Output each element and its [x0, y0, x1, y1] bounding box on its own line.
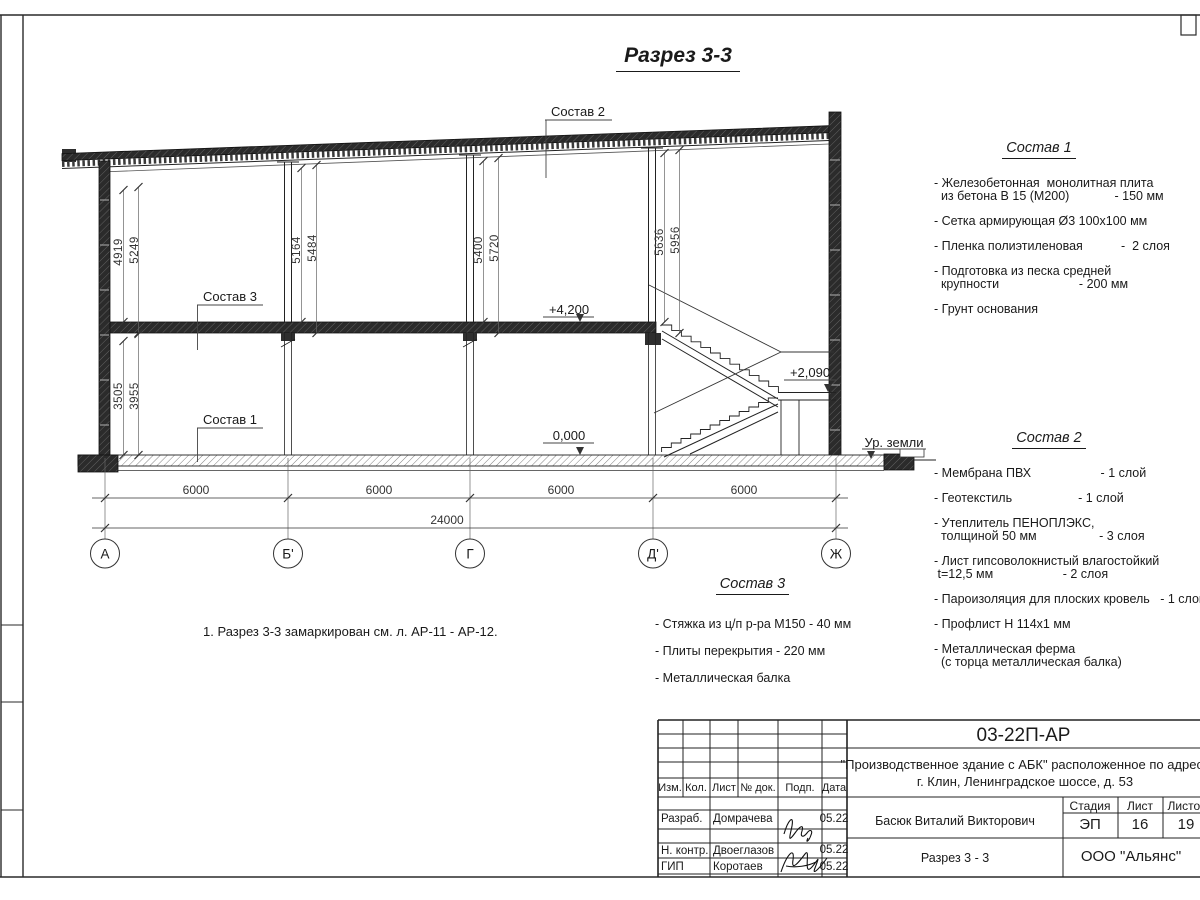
ground-floor-slab — [78, 449, 936, 472]
titleblock-col-list: Лист — [712, 782, 736, 794]
titleblock-col-data: Дата — [822, 782, 846, 794]
axis-label-zh: Ж — [830, 547, 842, 562]
callout-sostav1: Состав 1 — [197, 412, 263, 427]
dim-5956: 5956 — [670, 226, 682, 254]
drawing-title: Разрез 3-3 — [616, 44, 740, 72]
titleblock-doc-title: Разрез 3 - 3 — [921, 851, 989, 865]
titleblock-col-podp: Подп. — [785, 782, 814, 794]
titleblock-col-kol: Кол. — [685, 782, 707, 794]
callout-sostav3: Состав 3 — [197, 289, 263, 304]
dim-5164: 5164 — [291, 236, 303, 264]
titleblock-name-razrab: Домрачева — [713, 813, 773, 825]
elevation-ground: 0,000 — [543, 428, 595, 443]
titleblock-code: 03-22П-АР — [847, 725, 1200, 747]
signature-domracheva — [784, 820, 812, 842]
dim-4919: 4919 — [113, 238, 125, 266]
second-floor-slab — [110, 322, 661, 345]
dim-5636: 5636 — [654, 228, 666, 256]
titleblock-sheets-label: Листов — [1168, 799, 1200, 813]
titleblock-date-nkontr: 05.22 — [820, 844, 849, 856]
dim-total: 24000 — [430, 513, 463, 527]
titleblock-stage-value: ЭП — [1079, 816, 1101, 833]
sostav1-line: крупности - 200 мм — [934, 278, 1144, 291]
titleblock-object-line1: "Производственное здание с АБК" располож… — [841, 757, 1200, 772]
sostav1-block: Состав 1 - Железобетонная монолитная пли… — [934, 140, 1144, 316]
sostav2-line: - Мембрана ПВХ - 1 слой — [934, 467, 1164, 480]
sostav2-block: Состав 2 - Мембрана ПВХ - 1 слой - Геоте… — [934, 430, 1164, 669]
dim-span-1: 6000 — [183, 483, 210, 497]
sostav3-line: - Стяжка из ц/п р-ра М150 - 40 мм — [655, 618, 850, 631]
axis-label-a: А — [100, 547, 109, 562]
sostav3-heading: Состав 3 — [655, 576, 850, 592]
axis-label-b: Б' — [282, 547, 293, 562]
titleblock-role-nkontr: Н. контр. — [661, 845, 708, 857]
callout-sostav2: Состав 2 — [545, 104, 611, 119]
dim-5249: 5249 — [129, 236, 141, 264]
titleblock-col-doc: № док. — [740, 782, 775, 794]
elevation-landing: +2,090 — [783, 365, 837, 380]
sostav3-line: - Металлическая балка — [655, 672, 850, 685]
titleblock-col-izm: Изм. — [658, 782, 682, 794]
sostav1-line: - Пленка полиэтиленовая - 2 слоя — [934, 240, 1144, 253]
elevation-second-floor: +4,200 — [543, 302, 595, 317]
sostav1-heading: Состав 1 — [934, 140, 1144, 156]
drawing-note: 1. Разрез 3-3 замаркирован см. л. АР-11 … — [203, 624, 498, 639]
sostav1-line: - Сетка армирующая Ø3 100х100 мм — [934, 215, 1144, 228]
axis-label-g: Г — [466, 547, 473, 562]
sostav2-heading: Состав 2 — [934, 430, 1164, 446]
titleblock-sheet-value: 16 — [1132, 816, 1149, 833]
dim-5484: 5484 — [307, 234, 319, 262]
leader-lines — [197, 120, 926, 462]
titleblock-date-gip: 05.22 — [820, 861, 849, 873]
titleblock-name-nkontr: Двоеглазов — [713, 845, 774, 857]
titleblock-date-razrab: 05.22 — [820, 813, 849, 825]
sostav1-line: - Грунт основания — [934, 303, 1144, 316]
dim-3955: 3955 — [129, 382, 141, 410]
titleblock-engineer: Басюк Виталий Викторович — [875, 814, 1035, 828]
sostav2-line: - Геотекстиль - 1 слой — [934, 492, 1164, 505]
titleblock-object-line2: г. Клин, Ленинградское шоссе, д. 53 — [917, 774, 1133, 789]
sostav2-line: - Пароизоляция для плоских кровель - 1 с… — [934, 593, 1164, 606]
roof-section — [62, 126, 829, 172]
drawing-sheet: Разрез 3-3 Состав 2 Состав 3 Состав 1 +4… — [0, 0, 1200, 900]
sostav3-line: - Плиты перекрытия - 220 мм — [655, 645, 850, 658]
titleblock-role-gip: ГИП — [661, 861, 684, 873]
titleblock-company: ООО "Альянс" — [1081, 848, 1181, 865]
sostav2-line: t=12,5 мм - 2 слоя — [934, 568, 1164, 581]
dim-span-2: 6000 — [366, 483, 393, 497]
titleblock-stage-label: Стадия — [1070, 799, 1111, 813]
sostav2-line: толщиной 50 мм - 3 слоя — [934, 530, 1164, 543]
axis-label-d: Д' — [647, 547, 659, 562]
ground-level-label: Ур. земли — [862, 435, 926, 450]
columns-section — [277, 148, 663, 455]
sostav1-line: из бетона В 15 (М200) - 150 мм — [934, 190, 1144, 203]
sostav3-block: Состав 3 - Стяжка из ц/п р-ра М150 - 40 … — [655, 576, 850, 685]
titleblock-sheets-value: 19 — [1178, 816, 1195, 833]
dim-3505: 3505 — [113, 382, 125, 410]
sostav2-line: (с торца металлическая балка) — [934, 656, 1164, 669]
dim-span-3: 6000 — [548, 483, 575, 497]
titleblock-sheet-label: Лист — [1127, 799, 1153, 813]
titleblock-role-razrab: Разраб. — [661, 813, 702, 825]
dim-span-4: 6000 — [731, 483, 758, 497]
dim-5400: 5400 — [473, 236, 485, 264]
titleblock-name-gip: Коротаев — [713, 861, 763, 873]
sostav2-line: - Профлист Н 114х1 мм — [934, 618, 1164, 631]
dim-5720: 5720 — [489, 234, 501, 262]
